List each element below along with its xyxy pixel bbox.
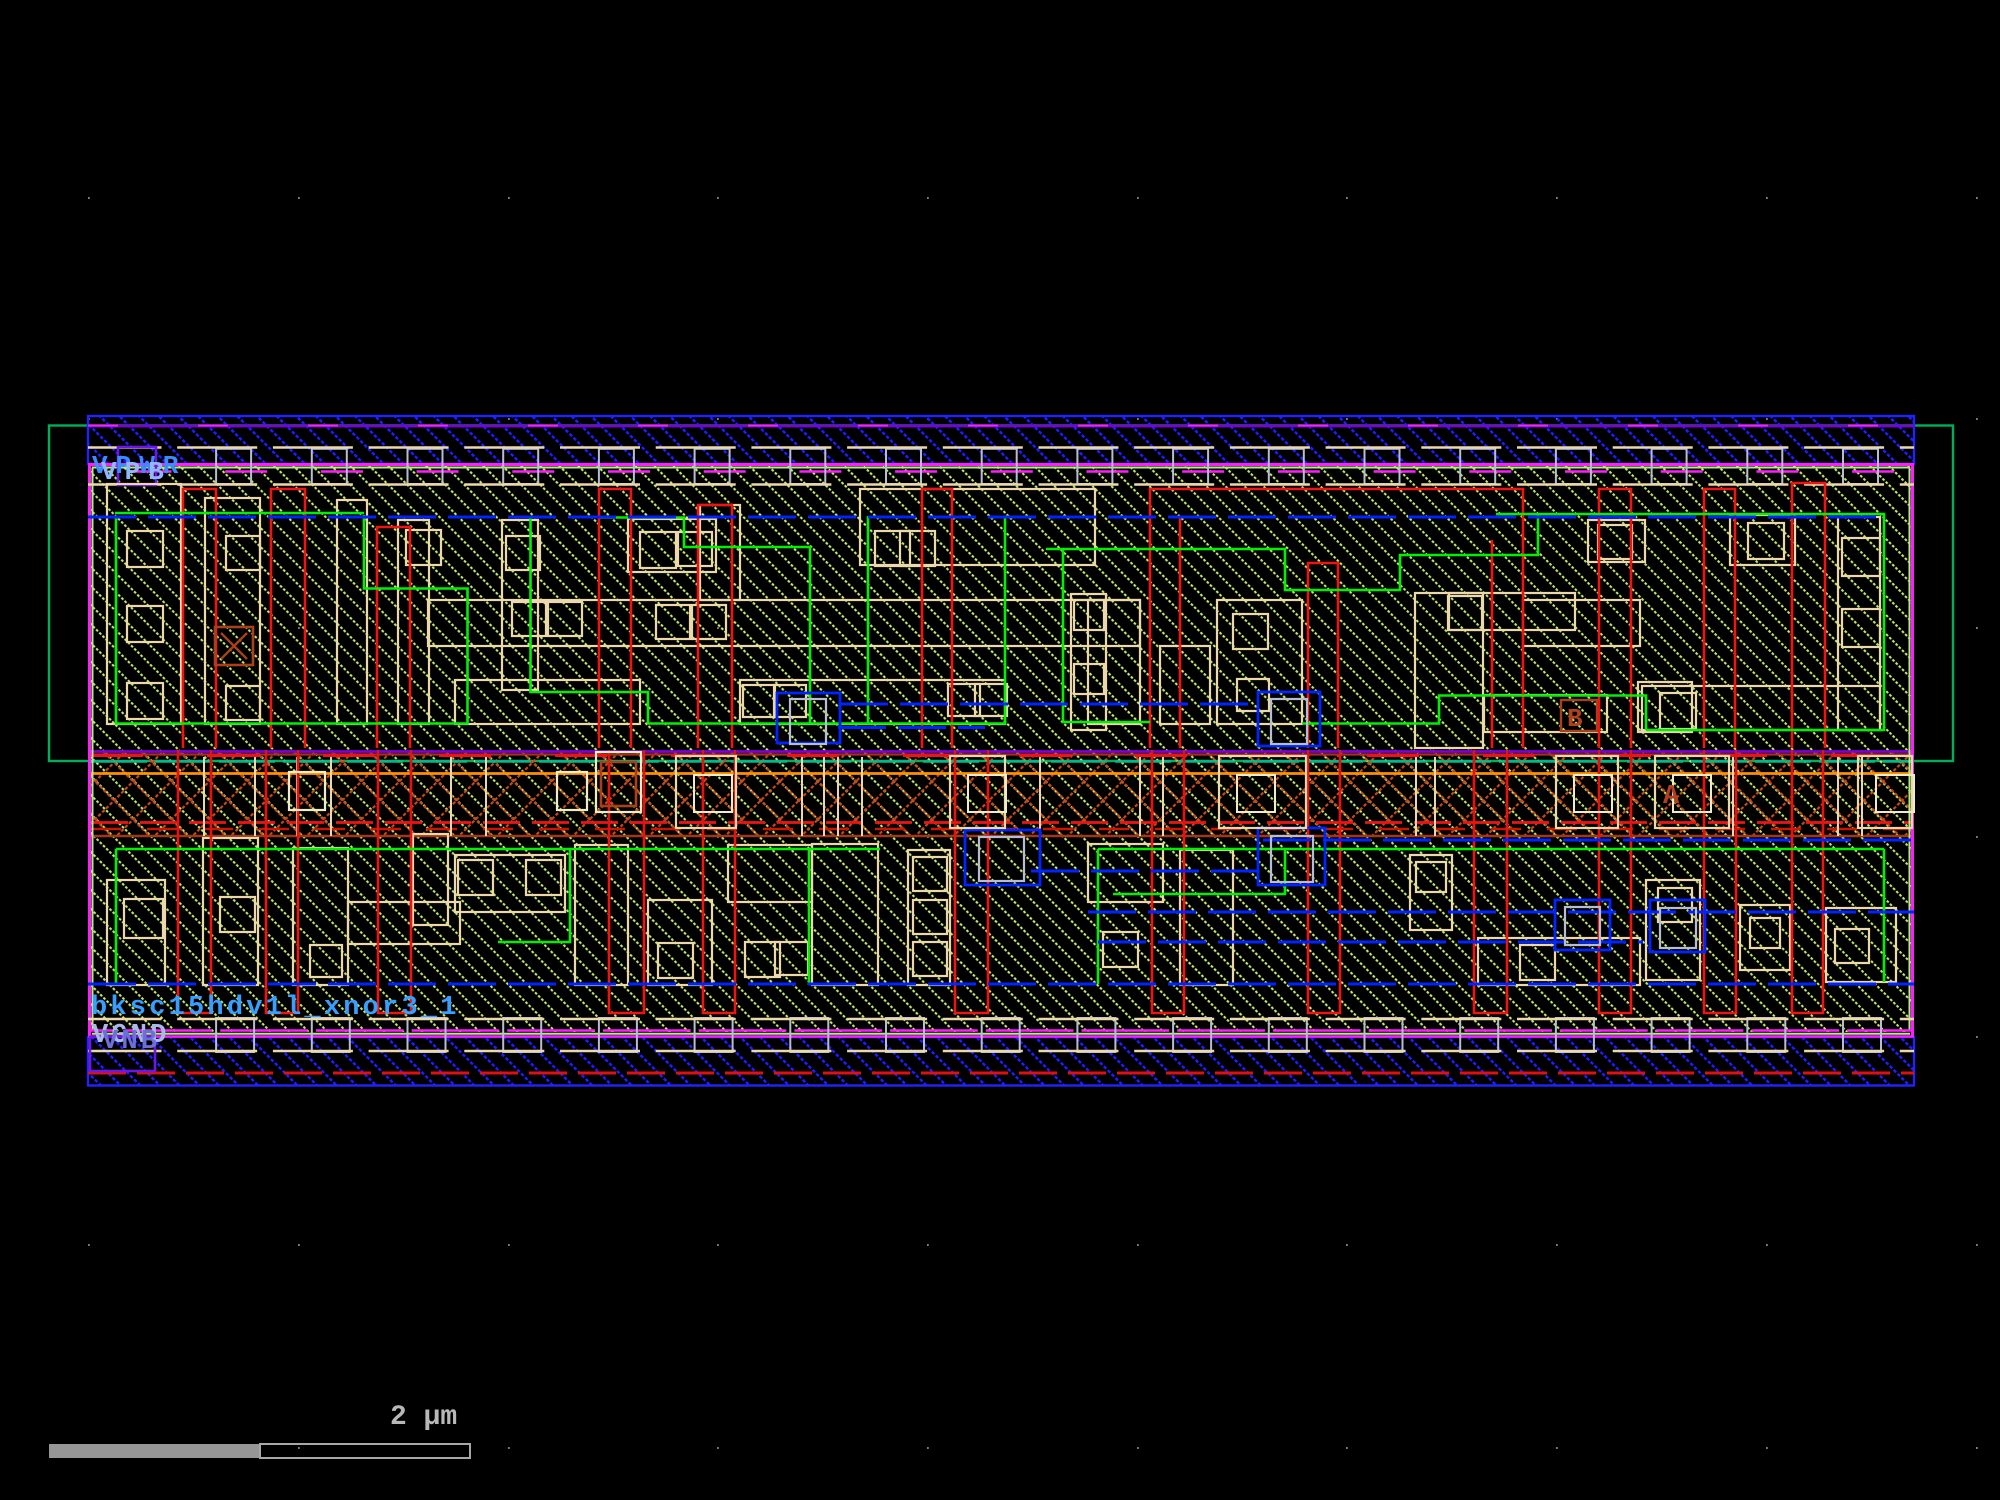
svg-text:bksc15hdv1l_xnor3_1: bksc15hdv1l_xnor3_1 — [91, 993, 460, 1023]
svg-text:2 µm: 2 µm — [390, 1402, 457, 1433]
svg-text:VNB: VNB — [102, 1027, 160, 1057]
svg-text:B: B — [1567, 704, 1583, 734]
svg-text:VPB: VPB — [101, 457, 172, 487]
svg-text:A: A — [1663, 782, 1680, 812]
